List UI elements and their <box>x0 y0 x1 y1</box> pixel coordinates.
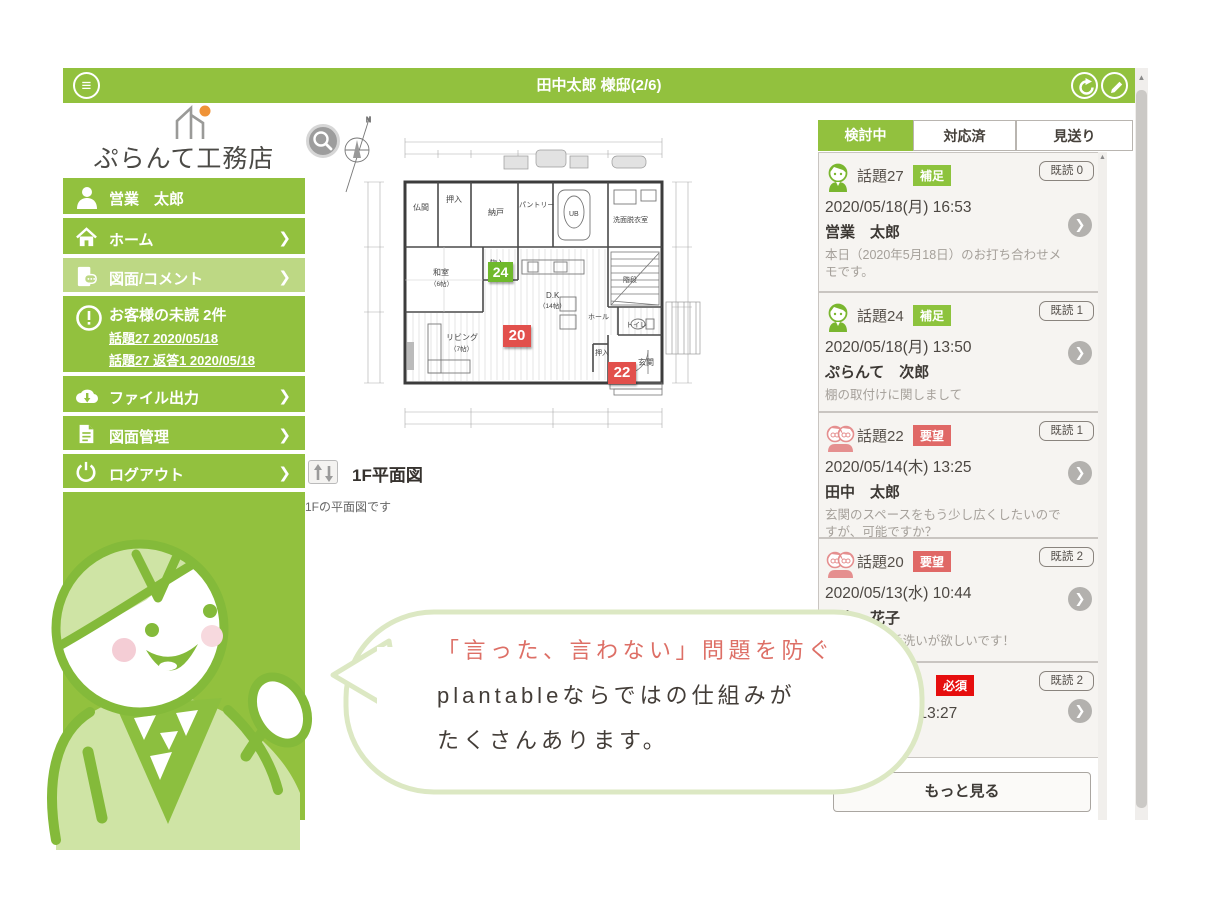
topic-number: 話題22 <box>857 425 904 446</box>
staff-avatar <box>825 162 851 197</box>
chevron-right-icon: ❯ <box>278 229 291 247</box>
open-topic-button[interactable]: ❯ <box>1068 213 1092 237</box>
speech-bubble-text: 「言った、言わない」問題を防ぐ plantableならではの仕組みが たくさんあ… <box>437 628 907 763</box>
svg-text:パントリー: パントリー <box>519 201 554 209</box>
scroll-up-icon[interactable]: ▲ <box>1135 73 1148 82</box>
topic-card[interactable]: 話題27 補足 既読 0 2020/05/18(月) 16:53 営業 太郎 本… <box>818 152 1105 292</box>
sidebar-item-drawings[interactable]: 図面/コメント ❯ <box>63 258 305 294</box>
svg-text:納戸: 納戸 <box>488 207 504 217</box>
topic-number: 話題20 <box>857 551 904 572</box>
plan-marker-24[interactable]: 24 <box>488 262 513 282</box>
plan-marker-22[interactable]: 22 <box>608 362 636 384</box>
compass-icon: N <box>345 116 371 192</box>
bubble-line-1: 「言った、言わない」問題を防ぐ <box>437 628 907 673</box>
badge-request: 要望 <box>913 425 951 446</box>
page: ≡ 田中太郎 様邸(2/6) <box>0 0 1232 902</box>
topic-body: 玄関のスペースをもう少し広くしたいのですが、可能ですか？ <box>825 507 1070 541</box>
swap-arrows-icon <box>310 462 338 484</box>
chevron-right-icon: ❯ <box>278 268 291 286</box>
logo-text: ぷらんて工務店 <box>63 139 305 175</box>
read-count-button[interactable]: 既読 2 <box>1039 671 1094 691</box>
topic-author: 営業 太郎 <box>825 221 900 242</box>
sidebar-item-label: 図面管理 <box>109 426 169 447</box>
unread-link[interactable]: 話題27 2020/05/18 <box>109 328 218 347</box>
topic-body: 本日（2020年5月18日）のお打ち合わせメモです。 <box>825 247 1070 281</box>
svg-text:（6帖）: （6帖） <box>430 279 453 288</box>
topic-card[interactable]: 話題22 要望 既読 1 2020/05/14(木) 13:25 田中 太郎 玄… <box>818 412 1105 538</box>
open-topic-button[interactable]: ❯ <box>1068 587 1092 611</box>
read-count-button[interactable]: 既読 1 <box>1039 421 1094 441</box>
open-topic-button[interactable]: ❯ <box>1068 699 1092 723</box>
staff-avatar <box>825 302 851 337</box>
svg-text:（14帖）: （14帖） <box>539 301 566 310</box>
topic-card[interactable]: 話題24 補足 既読 1 2020/05/18(月) 13:50 ぷらんて 次郎… <box>818 292 1105 412</box>
topic-body: 棚の取付けに関しまして <box>825 387 1070 404</box>
tab-postponed[interactable]: 見送り <box>1016 120 1133 151</box>
person-icon <box>75 185 99 214</box>
badge-request: 要望 <box>913 551 951 572</box>
unread-title: お客様の未読 2件 <box>109 304 227 325</box>
bubble-line-2: plantableならではの仕組みが <box>437 673 907 718</box>
page-scrollbar[interactable]: ▲ <box>1135 68 1148 820</box>
sidebar-unread: お客様の未読 2件 話題27 2020/05/18 話題27 返答1 2020/… <box>63 296 305 374</box>
svg-text:階段: 階段 <box>623 275 637 284</box>
home-icon <box>75 226 98 254</box>
tab-resolved[interactable]: 対応済 <box>913 120 1016 151</box>
svg-text:UB: UB <box>569 211 579 218</box>
logo[interactable]: ぷらんて工務店 <box>63 103 305 176</box>
cloud-download-icon <box>75 384 99 413</box>
sidebar-user: 営業 太郎 <box>63 178 305 216</box>
read-count-button[interactable]: 既読 1 <box>1039 301 1094 321</box>
topic-datetime: 2020/05/14(木) 13:25 <box>825 455 972 477</box>
plan-marker-20[interactable]: 20 <box>503 325 531 347</box>
sidebar-user-label: 営業 太郎 <box>109 188 184 209</box>
chevron-right-icon: ❯ <box>278 464 291 482</box>
sidebar-item-home[interactable]: ホーム ❯ <box>63 218 305 256</box>
scroll-up-icon[interactable]: ▲ <box>1098 154 1107 161</box>
sidebar-item-label: 図面/コメント <box>109 268 203 289</box>
sidebar-item-label: ファイル出力 <box>109 387 199 408</box>
edit-button[interactable] <box>1101 72 1128 99</box>
bubble-line-3: たくさんあります。 <box>437 718 907 763</box>
topic-author: 田中 太郎 <box>825 481 900 502</box>
sidebar-item-file-export[interactable]: ファイル出力 ❯ <box>63 376 305 414</box>
svg-text:トイレ: トイレ <box>626 322 647 329</box>
alert-icon <box>75 304 103 337</box>
scrollbar-thumb[interactable] <box>1136 90 1147 808</box>
svg-text:ホール: ホール <box>588 313 609 321</box>
svg-text:押入: 押入 <box>595 348 609 357</box>
drawing-caption: 1F平面図 <box>352 461 423 486</box>
swap-drawing-button[interactable] <box>308 460 338 484</box>
topic-datetime: 2020/05/18(月) 13:50 <box>825 335 972 357</box>
sidebar-item-label: ホーム <box>109 229 154 250</box>
svg-text:仏間: 仏間 <box>413 203 429 212</box>
svg-text:N: N <box>366 117 371 124</box>
topic-author: ぷらんて 次郎 <box>825 361 929 382</box>
refresh-icon <box>1076 77 1097 98</box>
chevron-right-icon: ❯ <box>278 387 291 405</box>
topic-datetime: 2020/05/18(月) 16:53 <box>825 195 972 217</box>
svg-text:洗面脱衣室: 洗面脱衣室 <box>613 215 648 224</box>
tab-under-review[interactable]: 検討中 <box>818 120 913 151</box>
svg-text:D.K: D.K <box>546 291 560 300</box>
open-topic-button[interactable]: ❯ <box>1068 341 1092 365</box>
sidebar-item-logout[interactable]: ログアウト ❯ <box>63 454 305 490</box>
drawing-comment-icon <box>75 265 98 293</box>
refresh-button[interactable] <box>1071 72 1098 99</box>
zoom-button[interactable] <box>306 124 340 158</box>
document-icon <box>75 423 97 450</box>
badge-supplement: 補足 <box>913 165 951 186</box>
floor-plan-drawing: N <box>308 112 818 462</box>
unread-link[interactable]: 話題27 返答1 2020/05/18 <box>109 350 255 369</box>
panel-scrollbar[interactable]: ▲ <box>1098 152 1107 820</box>
sidebar-item-label: ログアウト <box>109 464 184 485</box>
badge-supplement: 補足 <box>913 305 951 326</box>
floor-plan[interactable]: N <box>308 112 818 462</box>
topic-number: 話題27 <box>857 165 904 186</box>
header-bar: ≡ 田中太郎 様邸(2/6) <box>63 68 1135 103</box>
topic-number: 話題24 <box>857 305 904 326</box>
customer-couple-avatar <box>825 548 855 583</box>
house-logo-icon <box>165 103 215 141</box>
svg-text:押入: 押入 <box>446 194 462 204</box>
magnifier-icon <box>309 127 337 155</box>
customer-couple-avatar <box>825 422 855 457</box>
sidebar-item-drawing-manage[interactable]: 図面管理 ❯ <box>63 416 305 452</box>
svg-text:和室: 和室 <box>433 267 449 277</box>
open-topic-button[interactable]: ❯ <box>1068 461 1092 485</box>
page-title: 田中太郎 様邸(2/6) <box>63 68 1135 103</box>
svg-text:（7帖）: （7帖） <box>450 344 473 353</box>
mascot-character <box>40 538 350 853</box>
power-icon <box>75 461 97 488</box>
read-count-button[interactable]: 既読 0 <box>1039 161 1094 181</box>
read-count-button[interactable]: 既読 2 <box>1039 547 1094 567</box>
drawing-description: 1Fの平面図です <box>305 498 391 515</box>
chevron-right-icon: ❯ <box>278 426 291 444</box>
svg-text:玄関: 玄関 <box>638 357 654 367</box>
pencil-icon <box>1106 77 1127 98</box>
svg-text:リビング: リビング <box>446 332 478 342</box>
